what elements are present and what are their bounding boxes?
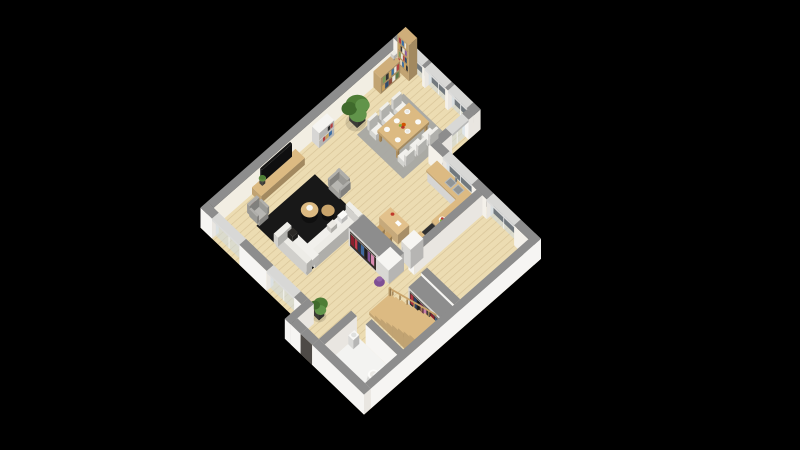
floorplan-3d-canvas: [0, 0, 800, 450]
floorplan-viewport: [0, 0, 800, 450]
